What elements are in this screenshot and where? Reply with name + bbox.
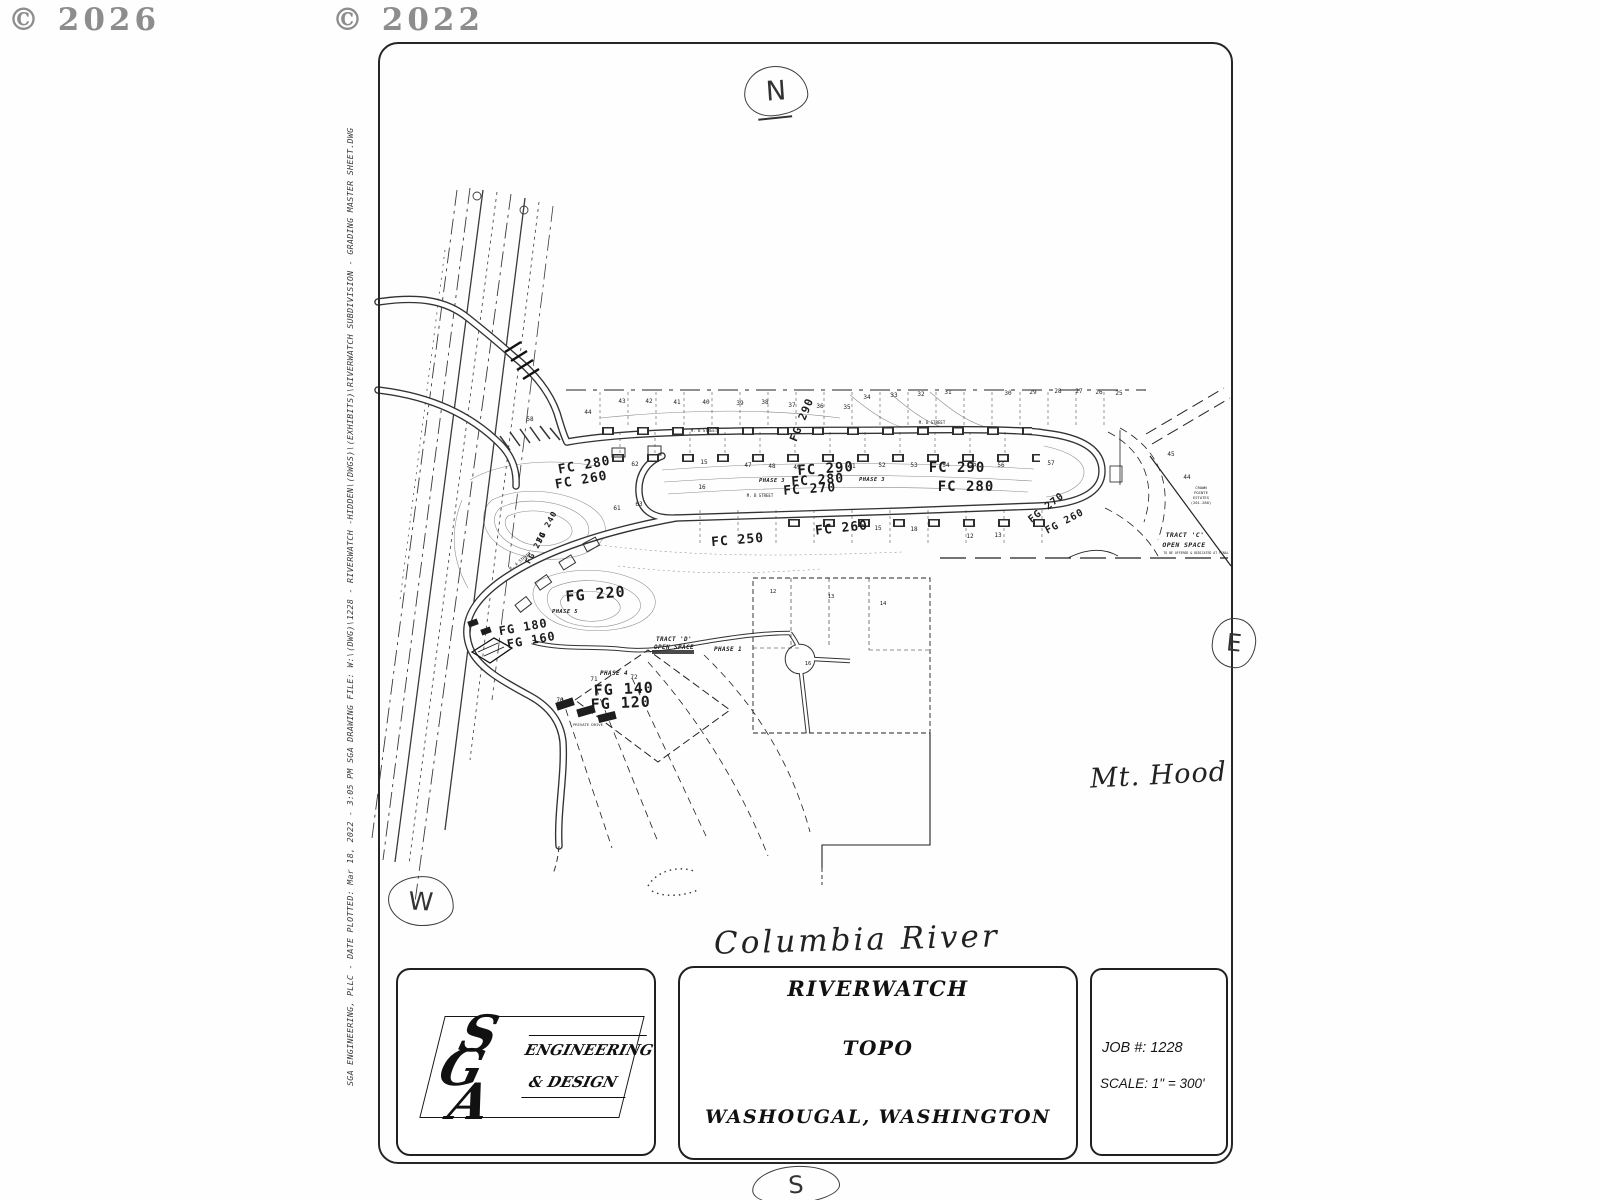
compass-west-letter: W [408,886,434,916]
job-number: JOB #: 1228 [1102,1040,1183,1056]
compass-north-letter: N [765,75,787,107]
project-title-box: RIVERWATCH TOPO WASHOUGAL, WASHINGTON [678,966,1078,1160]
drawing-type: TOPO [680,1036,1076,1060]
logo-rule [529,1035,647,1036]
logo-rule [521,1097,625,1098]
firm-name-line2: & DESIGN [527,1073,619,1091]
compass-south-letter: S [788,1171,805,1200]
job-info-box: JOB #: 1228 SCALE: 1" = 300' [1090,968,1228,1156]
drawing-scale: SCALE: 1" = 300' [1100,1076,1205,1091]
project-location: WASHOUGAL, WASHINGTON [680,1106,1076,1128]
firm-logo-parallelogram: S G A ENGINEERING & DESIGN [419,1016,644,1118]
project-name: RIVERWATCH [680,976,1076,1001]
compass-east-letter: E [1225,628,1243,657]
handwritten-columbia-river: Columbia River [714,918,1001,961]
plot-stamp-text: SGA ENGINEERING, PLLC - DATE PLOTTED: Ma… [345,246,360,1086]
firm-logo-box: S G A ENGINEERING & DESIGN [396,968,656,1156]
firm-name-line1: ENGINEERING [523,1041,655,1059]
scanned-topo-sheet: © 2026 © 2022 [0,0,1600,1200]
